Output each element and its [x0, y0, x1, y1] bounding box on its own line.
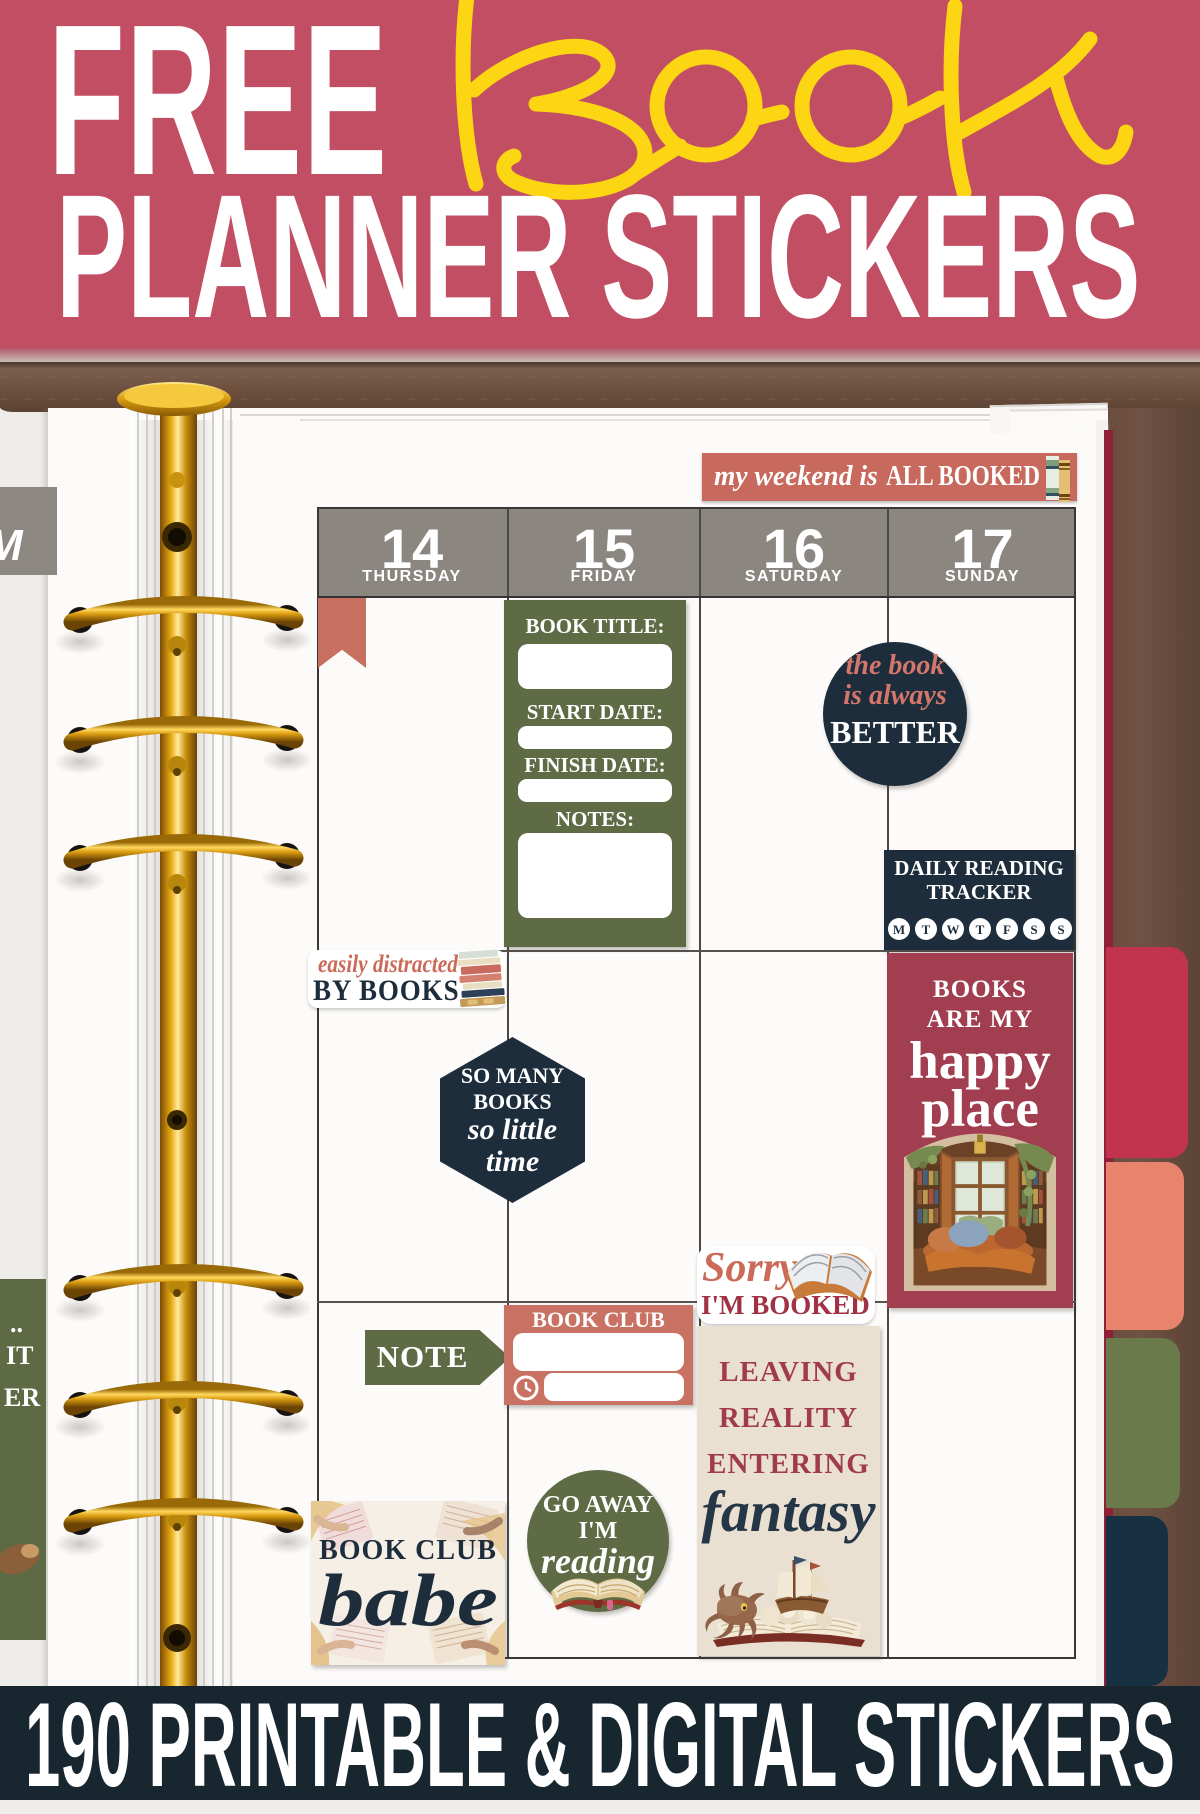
svg-text:S: S	[1057, 922, 1064, 937]
svg-text:F: F	[1003, 922, 1011, 937]
svg-text:W: W	[947, 922, 960, 937]
svg-text:T: T	[922, 922, 931, 937]
svg-text:T: T	[976, 922, 985, 937]
svg-text:S: S	[1030, 922, 1037, 937]
svg-text:M: M	[893, 922, 905, 937]
